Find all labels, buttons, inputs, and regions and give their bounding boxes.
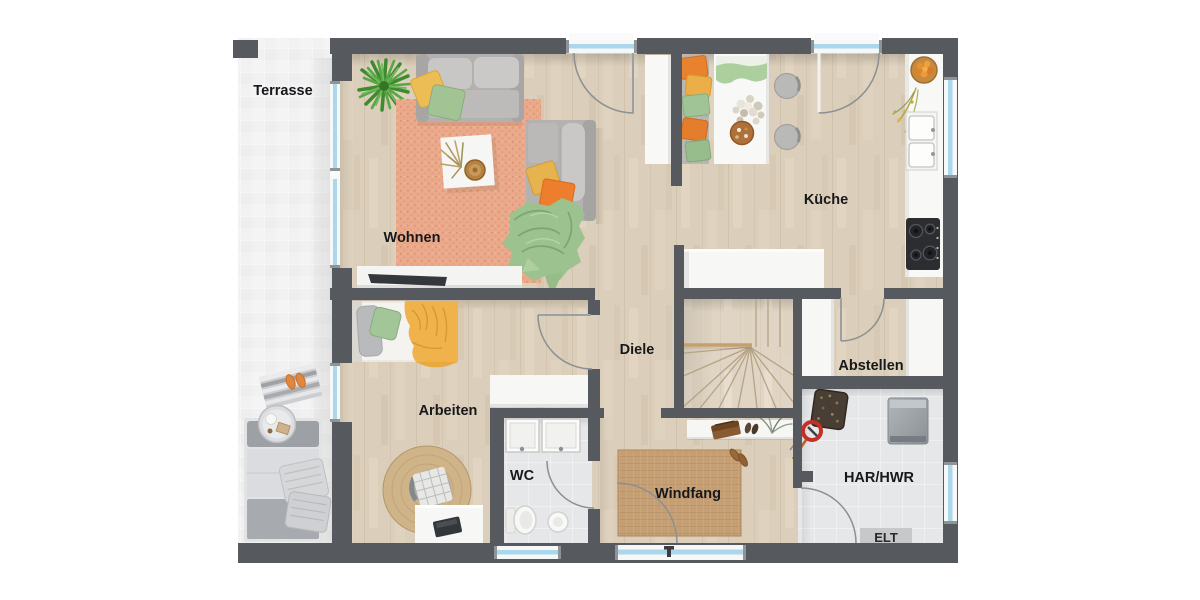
svg-text:Windfang: Windfang [655,486,721,502]
svg-text:HAR/HWR: HAR/HWR [844,470,915,486]
svg-text:Terrasse: Terrasse [253,83,312,99]
svg-text:Diele: Diele [620,342,655,358]
svg-text:ELT: ELT [874,530,898,545]
svg-text:Küche: Küche [804,192,848,208]
svg-text:Abstellen: Abstellen [838,358,903,374]
svg-text:Wohnen: Wohnen [384,230,441,246]
svg-text:WC: WC [510,468,535,484]
svg-text:Arbeiten: Arbeiten [419,403,478,419]
